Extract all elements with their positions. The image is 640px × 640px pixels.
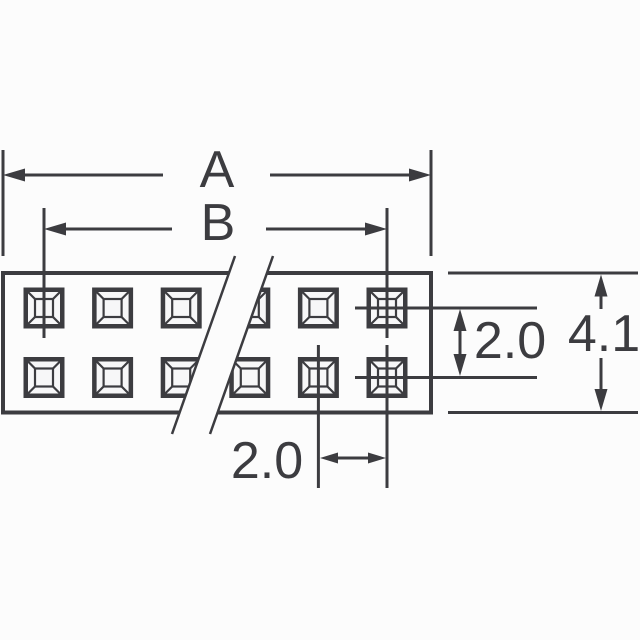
dim-a-label: A — [200, 144, 235, 196]
dim-row-pitch — [454, 309, 467, 376]
dim-col-pitch — [320, 453, 386, 464]
dim-b-label: B — [201, 197, 236, 249]
dim-row-pitch-label: 2.0 — [474, 315, 546, 367]
dim-col-pitch-arrow-right — [368, 453, 386, 464]
dim-b-arrow-left — [44, 223, 66, 236]
pin-socket — [26, 359, 63, 396]
technical-drawing: A B 2.0 4.1 2.0 — [0, 0, 640, 640]
dim-height-arrow-up — [595, 275, 608, 297]
dim-a-arrow-right — [409, 169, 431, 182]
dim-height-label: 4.1 — [568, 308, 640, 360]
dim-col-pitch-label: 2.0 — [231, 435, 303, 487]
dim-a-arrow-left — [3, 169, 25, 182]
dim-b-arrow-right — [365, 223, 387, 236]
pin-socket — [94, 290, 131, 327]
dim-row-pitch-arrow-up — [454, 309, 467, 331]
pin-socket — [300, 290, 337, 327]
pin-socket — [163, 290, 200, 327]
pin-socket — [232, 359, 268, 396]
dim-row-pitch-arrow-down — [454, 354, 467, 376]
dim-col-pitch-arrow-left — [320, 453, 338, 464]
pin-socket — [94, 359, 131, 396]
dim-height-arrow-down — [595, 389, 608, 411]
